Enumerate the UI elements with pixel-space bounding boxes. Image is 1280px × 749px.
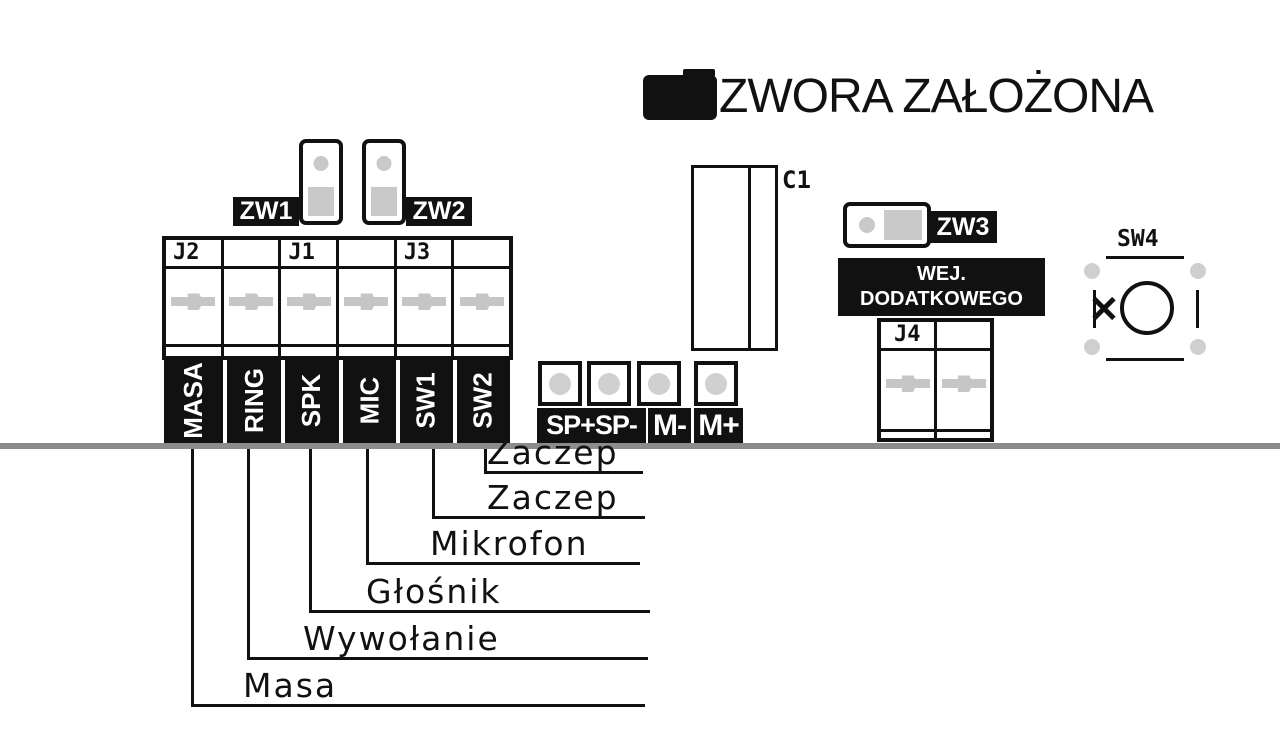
screw-icon — [344, 297, 388, 306]
jumper-zw1-icon — [299, 139, 343, 225]
connector-j1-label: J1 — [281, 240, 336, 269]
terminal-block-j4: J4 — [877, 318, 994, 442]
signal-label-zaczep-sw2: Zaczep — [487, 433, 619, 472]
signal-label-zaczep-sw1: Zaczep — [487, 478, 619, 517]
pin-mic: MIC — [343, 358, 396, 443]
pad-m-minus-icon — [637, 361, 681, 406]
connector-j3-label: J3 — [397, 240, 452, 269]
signal-label-wywolanie: Wywołanie — [303, 619, 500, 658]
pin-sw1: SW1 — [400, 358, 453, 443]
sw4-outline-top — [1106, 256, 1184, 259]
jumper-zw1-label: ZW1 — [233, 197, 299, 226]
sw4-corner-pad-icon — [1084, 263, 1100, 279]
terminal-cell: J1 — [281, 240, 339, 356]
jumper-pin-pad-icon — [314, 156, 329, 171]
screw-icon — [171, 297, 215, 306]
signal-label-masa: Masa — [243, 666, 337, 705]
terminal-cell — [339, 240, 397, 356]
pcb-connection-diagram: ZWORA ZAŁOŻONA ZW1 ZW2 J2 J1 J3 — [0, 0, 1280, 749]
sw4-button-circle-icon — [1120, 281, 1174, 335]
jumper-zw2-label: ZW2 — [406, 197, 472, 226]
tact-switch-sw4-label: SW4 — [1117, 226, 1159, 252]
aux-button-input-note: WEJ. DODATKOWEGO PRZYCISKU — [838, 258, 1045, 316]
jumper-tab-icon — [683, 69, 715, 77]
screw-icon — [287, 297, 331, 306]
sw4-corner-pad-icon — [1190, 339, 1206, 355]
pin-sw2: SW2 — [457, 358, 510, 443]
sw4-outline-right — [1196, 290, 1199, 328]
jumper-zw2-icon — [362, 139, 406, 225]
legend-label: ZWORA ZAŁOŻONA — [719, 69, 1153, 125]
signal-label-glosnik: Głośnik — [366, 572, 502, 611]
pad-m-minus-label: M- — [648, 408, 691, 443]
jumper-cap-icon — [371, 187, 397, 216]
jumper-installed-swatch-icon — [643, 75, 717, 120]
jumper-zw3-label: ZW3 — [929, 211, 997, 243]
screw-icon — [460, 297, 504, 306]
pad-sp-minus-icon — [587, 361, 631, 406]
jumper-pin-pad-icon — [377, 156, 392, 171]
pin-spk: SPK — [285, 358, 339, 443]
jumper-pin-pad-icon — [859, 217, 875, 233]
terminal-cell: J3 — [397, 240, 455, 356]
pad-m-plus-icon — [694, 361, 738, 406]
jumper-zw3-icon — [843, 202, 931, 248]
screw-icon — [942, 379, 986, 388]
capacitor-divider — [748, 168, 751, 348]
terminal-cell: J2 — [166, 240, 224, 356]
screw-icon — [402, 297, 446, 306]
wire-masa-vertical — [191, 449, 194, 707]
jumper-cap-icon — [308, 187, 334, 216]
wire-spk-vertical — [309, 449, 312, 613]
pin-masa: MASA — [164, 358, 223, 443]
pad-m-plus-label: M+ — [694, 408, 743, 443]
jumper-cap-icon — [884, 210, 922, 240]
connector-j2-label: J2 — [166, 240, 221, 269]
terminal-cell — [937, 322, 990, 438]
pin-ring: RING — [227, 358, 281, 443]
connector-j4-label: J4 — [881, 322, 934, 351]
screw-icon — [229, 297, 273, 306]
aux-note-line1: WEJ. DODATKOWEGO — [838, 262, 1045, 312]
capacitor-c1-label: C1 — [782, 166, 811, 194]
sw4-corner-pad-icon — [1084, 339, 1100, 355]
wire-ring-vertical — [247, 449, 250, 660]
capacitor-c1-icon — [691, 165, 778, 351]
sw4-outline-bottom — [1106, 358, 1184, 361]
pad-sp-plus-icon — [538, 361, 582, 406]
sw4-corner-pad-icon — [1190, 263, 1206, 279]
wire-sw1-vertical — [432, 449, 435, 519]
terminal-cell — [454, 240, 509, 356]
signal-label-mikrofon: Mikrofon — [430, 524, 589, 563]
terminal-block-main: J2 J1 J3 — [162, 236, 513, 360]
terminal-cell — [224, 240, 282, 356]
wire-mic-vertical — [366, 449, 369, 565]
terminal-cell: J4 — [881, 322, 937, 438]
screw-icon — [886, 379, 930, 388]
